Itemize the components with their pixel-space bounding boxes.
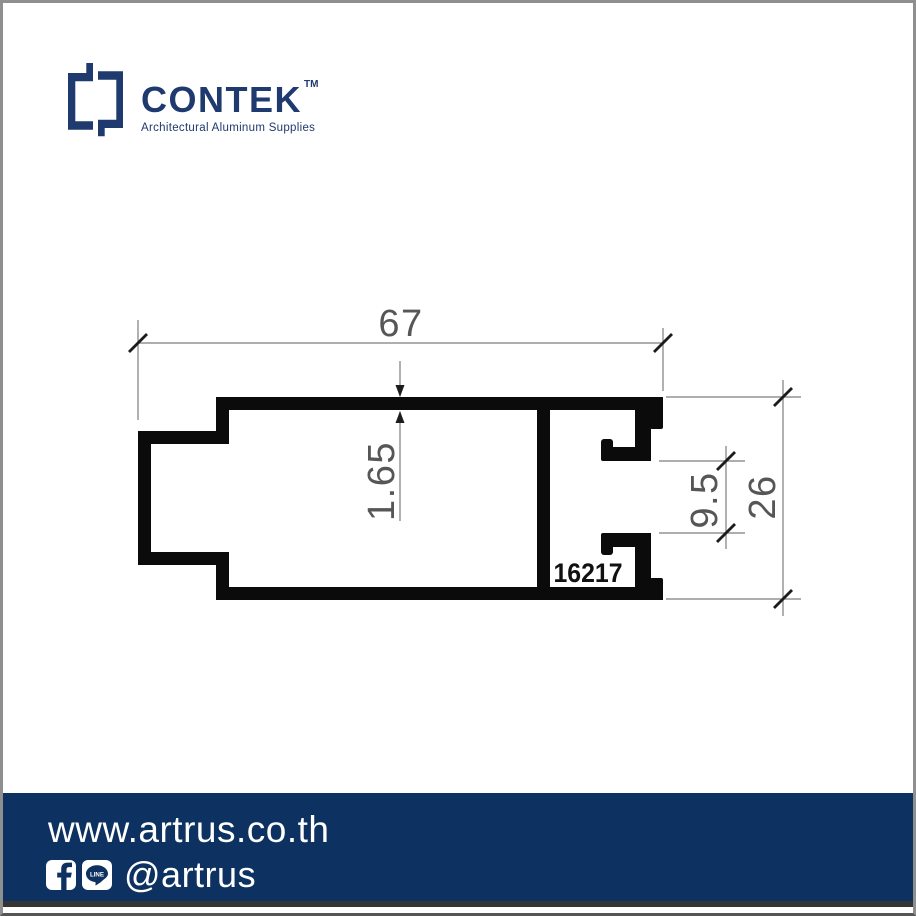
arrowhead-down <box>396 385 405 397</box>
dimension-channel-opening: 9.5 <box>659 446 745 549</box>
facebook-icon <box>46 860 76 890</box>
footer-bottom-edge <box>3 901 913 907</box>
wall-protrusion-top <box>138 431 229 444</box>
arrowhead-up <box>396 411 405 423</box>
wall-top-jaw-hook <box>601 439 613 461</box>
dimension-wall-thickness: 1.65 <box>361 361 405 521</box>
wall-top-right-lip <box>650 407 663 429</box>
dim-value-height: 26 <box>742 474 784 519</box>
part-number-label: 16217 <box>553 559 622 588</box>
wall-protrusion-bottom <box>138 552 229 565</box>
social-handle: @artrus <box>124 854 256 896</box>
wall-bottom-bar <box>216 587 663 600</box>
line-label: LINE <box>90 871 104 878</box>
catalog-page: CONTEK TM Architectural Aluminum Supplie… <box>0 0 916 916</box>
dim-value-channel: 9.5 <box>684 471 726 528</box>
wall-bottom-jaw-hook <box>601 533 613 555</box>
wall-top-bar <box>216 397 663 410</box>
wall-protrusion-left <box>138 431 151 565</box>
website-url: www.artrus.co.th <box>48 809 329 851</box>
dim-value-thickness: 1.65 <box>361 441 403 521</box>
social-row: LINE @artrus <box>46 859 256 891</box>
profile-cross-section-drawing: 67 1.65 9.5 26 16217 <box>3 3 913 913</box>
dim-value-width: 67 <box>378 303 423 345</box>
footer-band: www.artrus.co.th LINE @artrus <box>3 793 913 907</box>
line-icon: LINE <box>82 860 112 890</box>
wall-center-divider <box>537 397 550 600</box>
wall-bottom-right-lip <box>650 578 663 600</box>
